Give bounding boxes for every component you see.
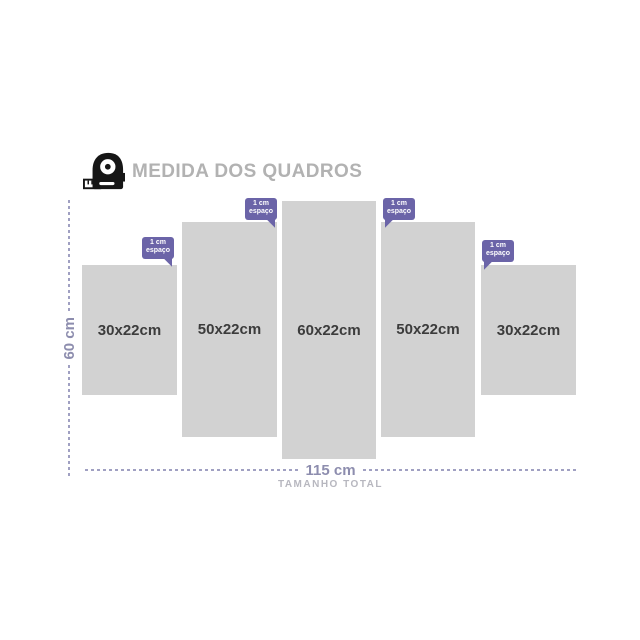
height-dimension: 60 cm: [52, 200, 86, 477]
panel-size-label: 50x22cm: [198, 321, 261, 338]
height-dimension-label: 60 cm: [61, 317, 78, 360]
width-dimension-label: 115 cm: [305, 462, 355, 479]
spacing-badge-line2: espaço: [482, 250, 514, 258]
panel-size-label: 30x22cm: [497, 322, 560, 339]
height-dashed-line-top: [68, 200, 70, 312]
width-dashed-line-left: [85, 469, 298, 471]
panel-size-label: 50x22cm: [396, 321, 459, 338]
panel-50x22-right: 50x22cm: [381, 222, 475, 437]
panel-30x22-far-right: 30x22cm: [481, 265, 576, 395]
height-dashed-line-bottom: [68, 365, 70, 477]
tape-measure-icon: [83, 150, 125, 194]
total-size-caption: TAMANHO TOTAL: [85, 479, 576, 490]
spacing-badge-1: 1 cm espaço: [142, 237, 174, 259]
spacing-badge-line1: 1 cm: [245, 200, 277, 208]
panel-60x22-center: 60x22cm: [282, 201, 376, 459]
frame-measurements-diagram: MEDIDA DOS QUADROS 60 cm 30x22cm 50x22cm…: [0, 0, 640, 640]
spacing-badge-line1: 1 cm: [383, 200, 415, 208]
spacing-badge-line1: 1 cm: [142, 239, 174, 247]
width-dimension: 115 cm: [85, 462, 576, 478]
panel-50x22-left: 50x22cm: [182, 222, 277, 437]
spacing-badge-4: 1 cm espaço: [482, 240, 514, 262]
width-dashed-line-right: [363, 469, 576, 471]
panel-30x22-far-left: 30x22cm: [82, 265, 177, 395]
spacing-badge-line2: espaço: [142, 247, 174, 255]
spacing-badge-2: 1 cm espaço: [245, 198, 277, 220]
header: MEDIDA DOS QUADROS: [83, 150, 362, 194]
spacing-badge-line2: espaço: [383, 208, 415, 216]
spacing-badge-3: 1 cm espaço: [383, 198, 415, 220]
panel-size-label: 60x22cm: [297, 322, 360, 339]
spacing-badge-line1: 1 cm: [482, 242, 514, 250]
panel-size-label: 30x22cm: [98, 322, 161, 339]
spacing-badge-line2: espaço: [245, 208, 277, 216]
page-title: MEDIDA DOS QUADROS: [132, 161, 362, 183]
